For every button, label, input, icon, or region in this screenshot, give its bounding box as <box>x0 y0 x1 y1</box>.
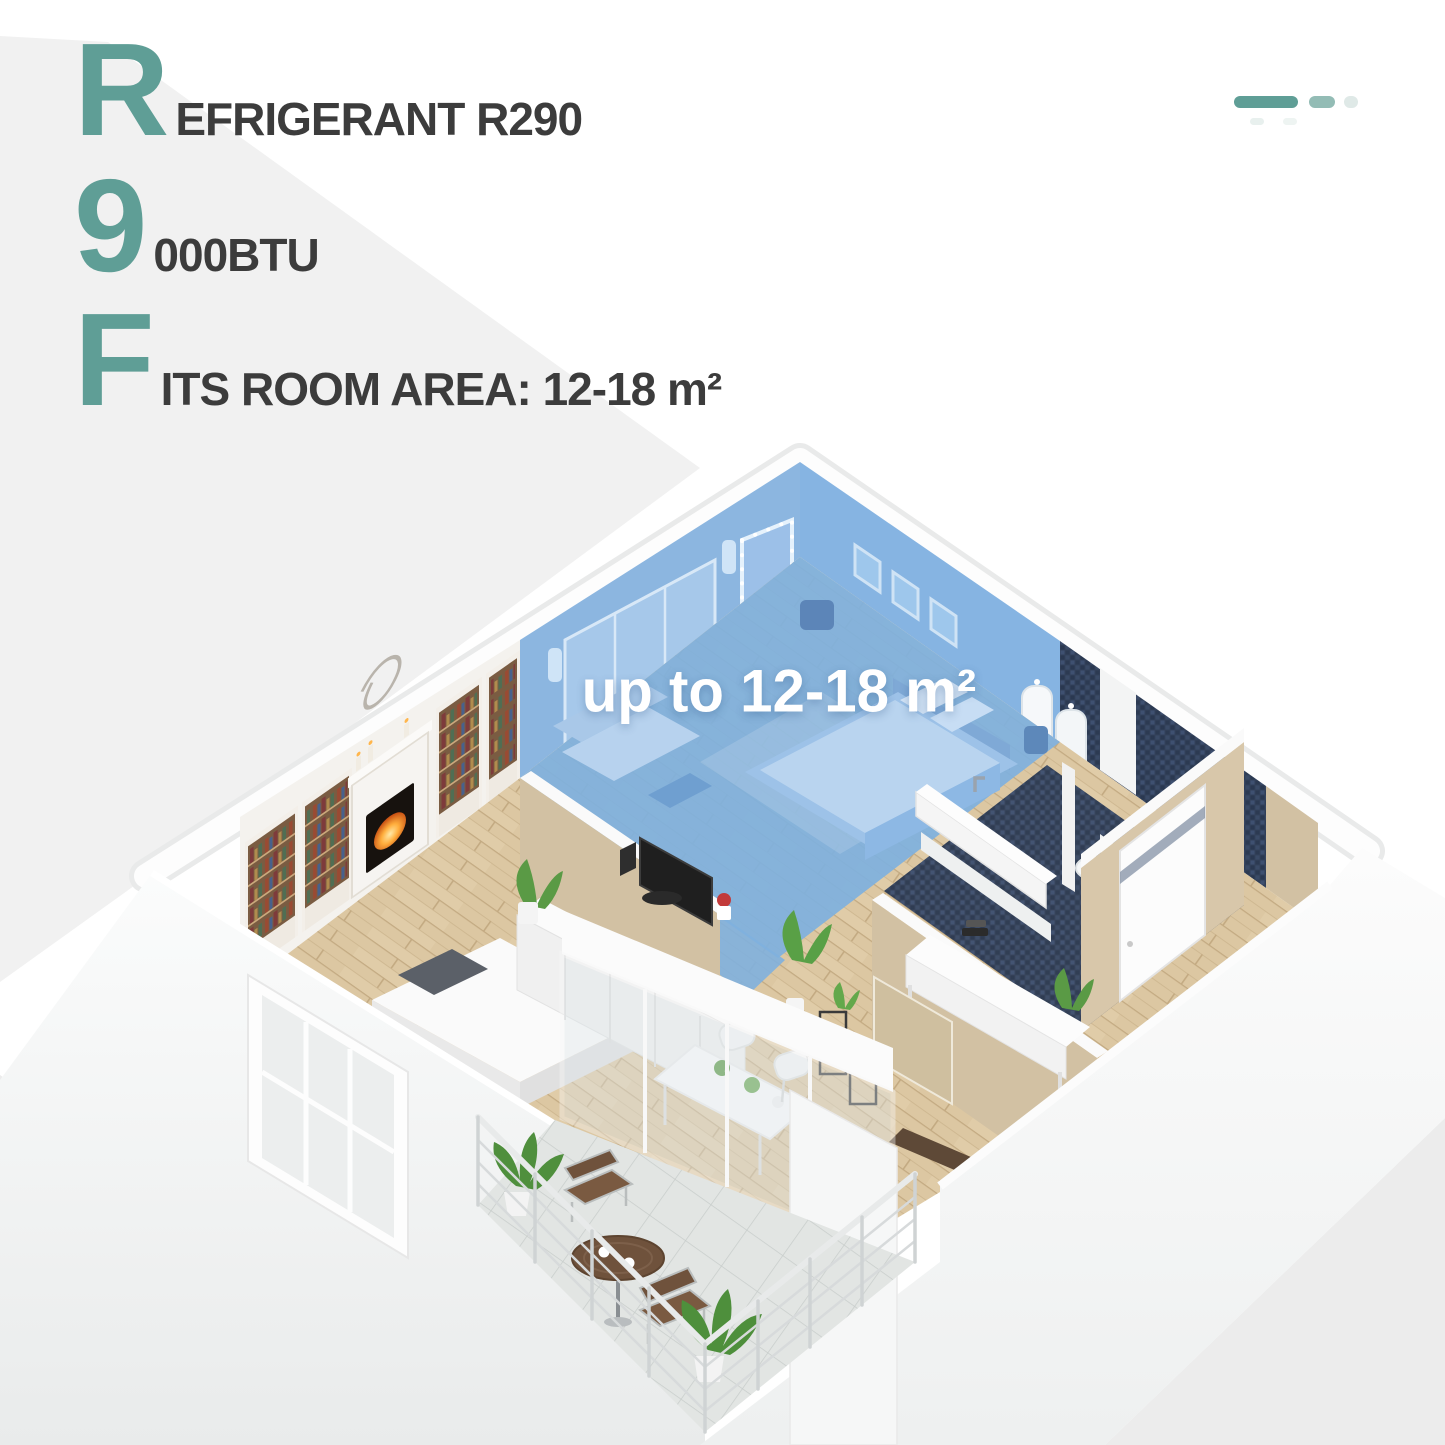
feature-text: 000BTU <box>153 228 318 282</box>
product-image-page: REFRIGERANT R290 9000BTU FITS ROOM AREA:… <box>0 0 1445 1445</box>
feature-room-area: FITS ROOM AREA: 12-18 m² <box>74 306 721 416</box>
feature-big-letter: F <box>74 306 152 414</box>
header-block: REFRIGERANT R290 9000BTU FITS ROOM AREA:… <box>74 30 774 450</box>
wall-sconce <box>722 540 736 574</box>
feature-btu: 9000BTU <box>74 172 319 282</box>
feature-refrigerant: REFRIGERANT R290 <box>74 36 582 146</box>
pill-large <box>1234 96 1298 108</box>
feature-text: ITS ROOM AREA: 12-18 m² <box>161 362 722 416</box>
flower <box>717 893 731 907</box>
door-handle <box>1127 941 1133 947</box>
books-stack <box>962 928 988 936</box>
pill-small <box>1344 96 1358 108</box>
flower-pot <box>717 906 731 920</box>
table-lamp <box>800 600 834 630</box>
tv-stand <box>642 891 682 905</box>
pill-faint-1 <box>1250 118 1264 125</box>
feature-big-letter: R <box>74 36 166 144</box>
bookcase <box>486 650 520 804</box>
pill-medium <box>1309 96 1335 108</box>
toilet-partition <box>1062 762 1075 892</box>
feature-text: EFRIGERANT R290 <box>175 92 582 146</box>
feature-big-letter: 9 <box>74 172 144 280</box>
table-lamp <box>1024 726 1048 754</box>
wall-sconce <box>548 648 562 682</box>
room-area-label: up to 12-18 m² <box>582 657 977 726</box>
pill-faint-2 <box>1283 118 1297 125</box>
